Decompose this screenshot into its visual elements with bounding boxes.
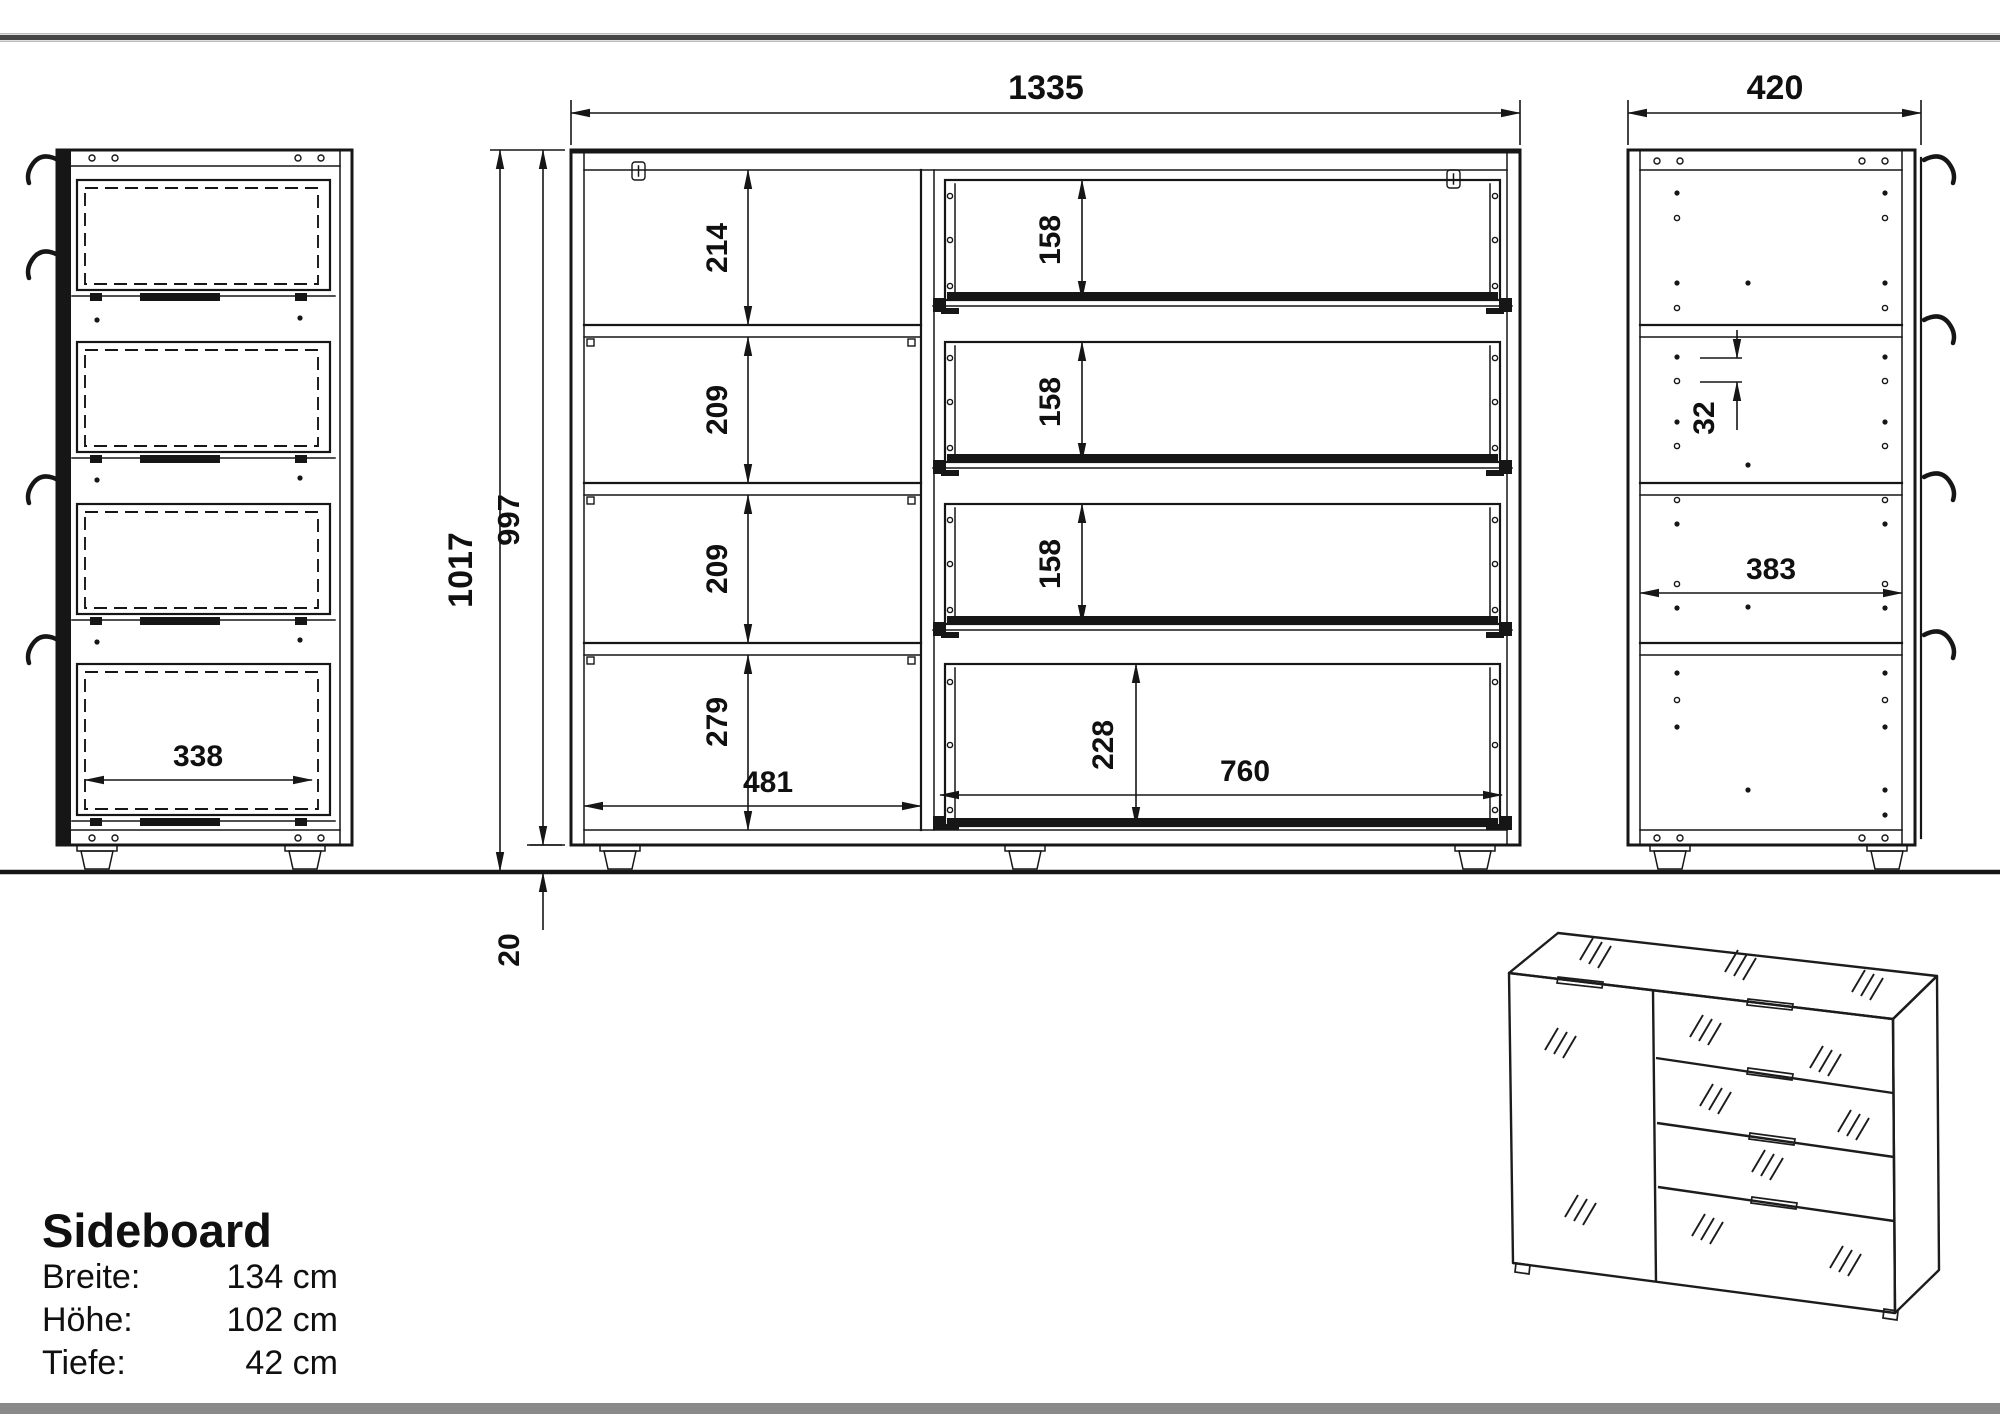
dim-label-383: 383	[1746, 553, 1796, 586]
dim-label-209b: 209	[701, 544, 734, 594]
glass-hatch-icon	[1545, 938, 1883, 1276]
dim-420: 420	[1628, 69, 1921, 145]
left-view-drawer-2	[72, 315, 335, 463]
front-view-drawer-1: 158	[933, 180, 1512, 314]
right-side-view: 420 32 383	[1628, 69, 1954, 869]
dim-label-279: 279	[701, 697, 734, 747]
left-view-drawer-3	[72, 475, 335, 625]
page-bottom-bar	[0, 1403, 2000, 1414]
dim-label-481: 481	[743, 766, 793, 799]
dim-label-158c: 158	[1034, 539, 1067, 589]
dim-label-228: 228	[1087, 720, 1120, 770]
dim-383: 383	[1640, 553, 1902, 593]
front-view-drawer-2: 158	[933, 342, 1512, 476]
dim-label-760: 760	[1220, 755, 1270, 788]
dim-label-997: 997	[491, 494, 526, 546]
dim-1335: 1335	[571, 69, 1520, 145]
dim-label-338: 338	[173, 740, 223, 773]
dim-label-158b: 158	[1034, 377, 1067, 427]
page-top-rule	[0, 33, 2000, 42]
left-view-drawer-1	[72, 180, 335, 301]
front-view: 214 209 209 279 481 158	[442, 69, 1520, 967]
spec-value-breite: 134 cm	[227, 1258, 339, 1296]
dim-338: 338	[85, 740, 312, 780]
product-title: Sideboard	[42, 1204, 272, 1257]
right-view-feet	[1650, 845, 1907, 869]
spec-value-tiefe: 42 cm	[245, 1344, 338, 1382]
perspective-view	[1509, 933, 1939, 1320]
right-view-carcass	[1628, 150, 1921, 845]
spec-value-hoehe: 102 cm	[227, 1301, 339, 1339]
front-view-cell-dims: 214 209 209 279 481	[584, 170, 921, 830]
spec-label-hoehe: Höhe:	[42, 1301, 133, 1339]
front-view-drawer-4: 228 760	[933, 664, 1512, 830]
dim-label-32: 32	[1688, 401, 1721, 434]
title-block: Sideboard Breite: 134 cm Höhe: 102 cm Ti…	[42, 1204, 338, 1382]
dim-label-1335: 1335	[1008, 69, 1084, 107]
left-view-drawer-4	[72, 637, 335, 826]
dim-label-1017: 1017	[442, 532, 480, 608]
dim-label-214: 214	[701, 223, 734, 273]
front-view-shelves	[584, 325, 921, 664]
dim-label-158a: 158	[1034, 215, 1067, 265]
left-view-hinge-hooks	[28, 156, 58, 663]
left-view-feet	[77, 845, 325, 869]
dim-label-209a: 209	[701, 385, 734, 435]
spec-label-tiefe: Tiefe:	[42, 1344, 126, 1382]
dim-32: 32	[1688, 330, 1742, 435]
dim-label-20: 20	[493, 933, 526, 966]
dim-heights: 1017 997 20	[442, 150, 565, 967]
right-view-shelf-pin-holes	[1674, 190, 1887, 817]
front-view-drawer-3: 158	[933, 504, 1512, 638]
dim-label-420: 420	[1747, 69, 1804, 107]
cam-lock-icon	[632, 162, 645, 180]
front-view-feet	[600, 845, 1495, 869]
spec-label-breite: Breite:	[42, 1258, 140, 1296]
left-side-view: 338	[28, 150, 352, 869]
right-view-hinge-hooks	[1924, 156, 1954, 658]
